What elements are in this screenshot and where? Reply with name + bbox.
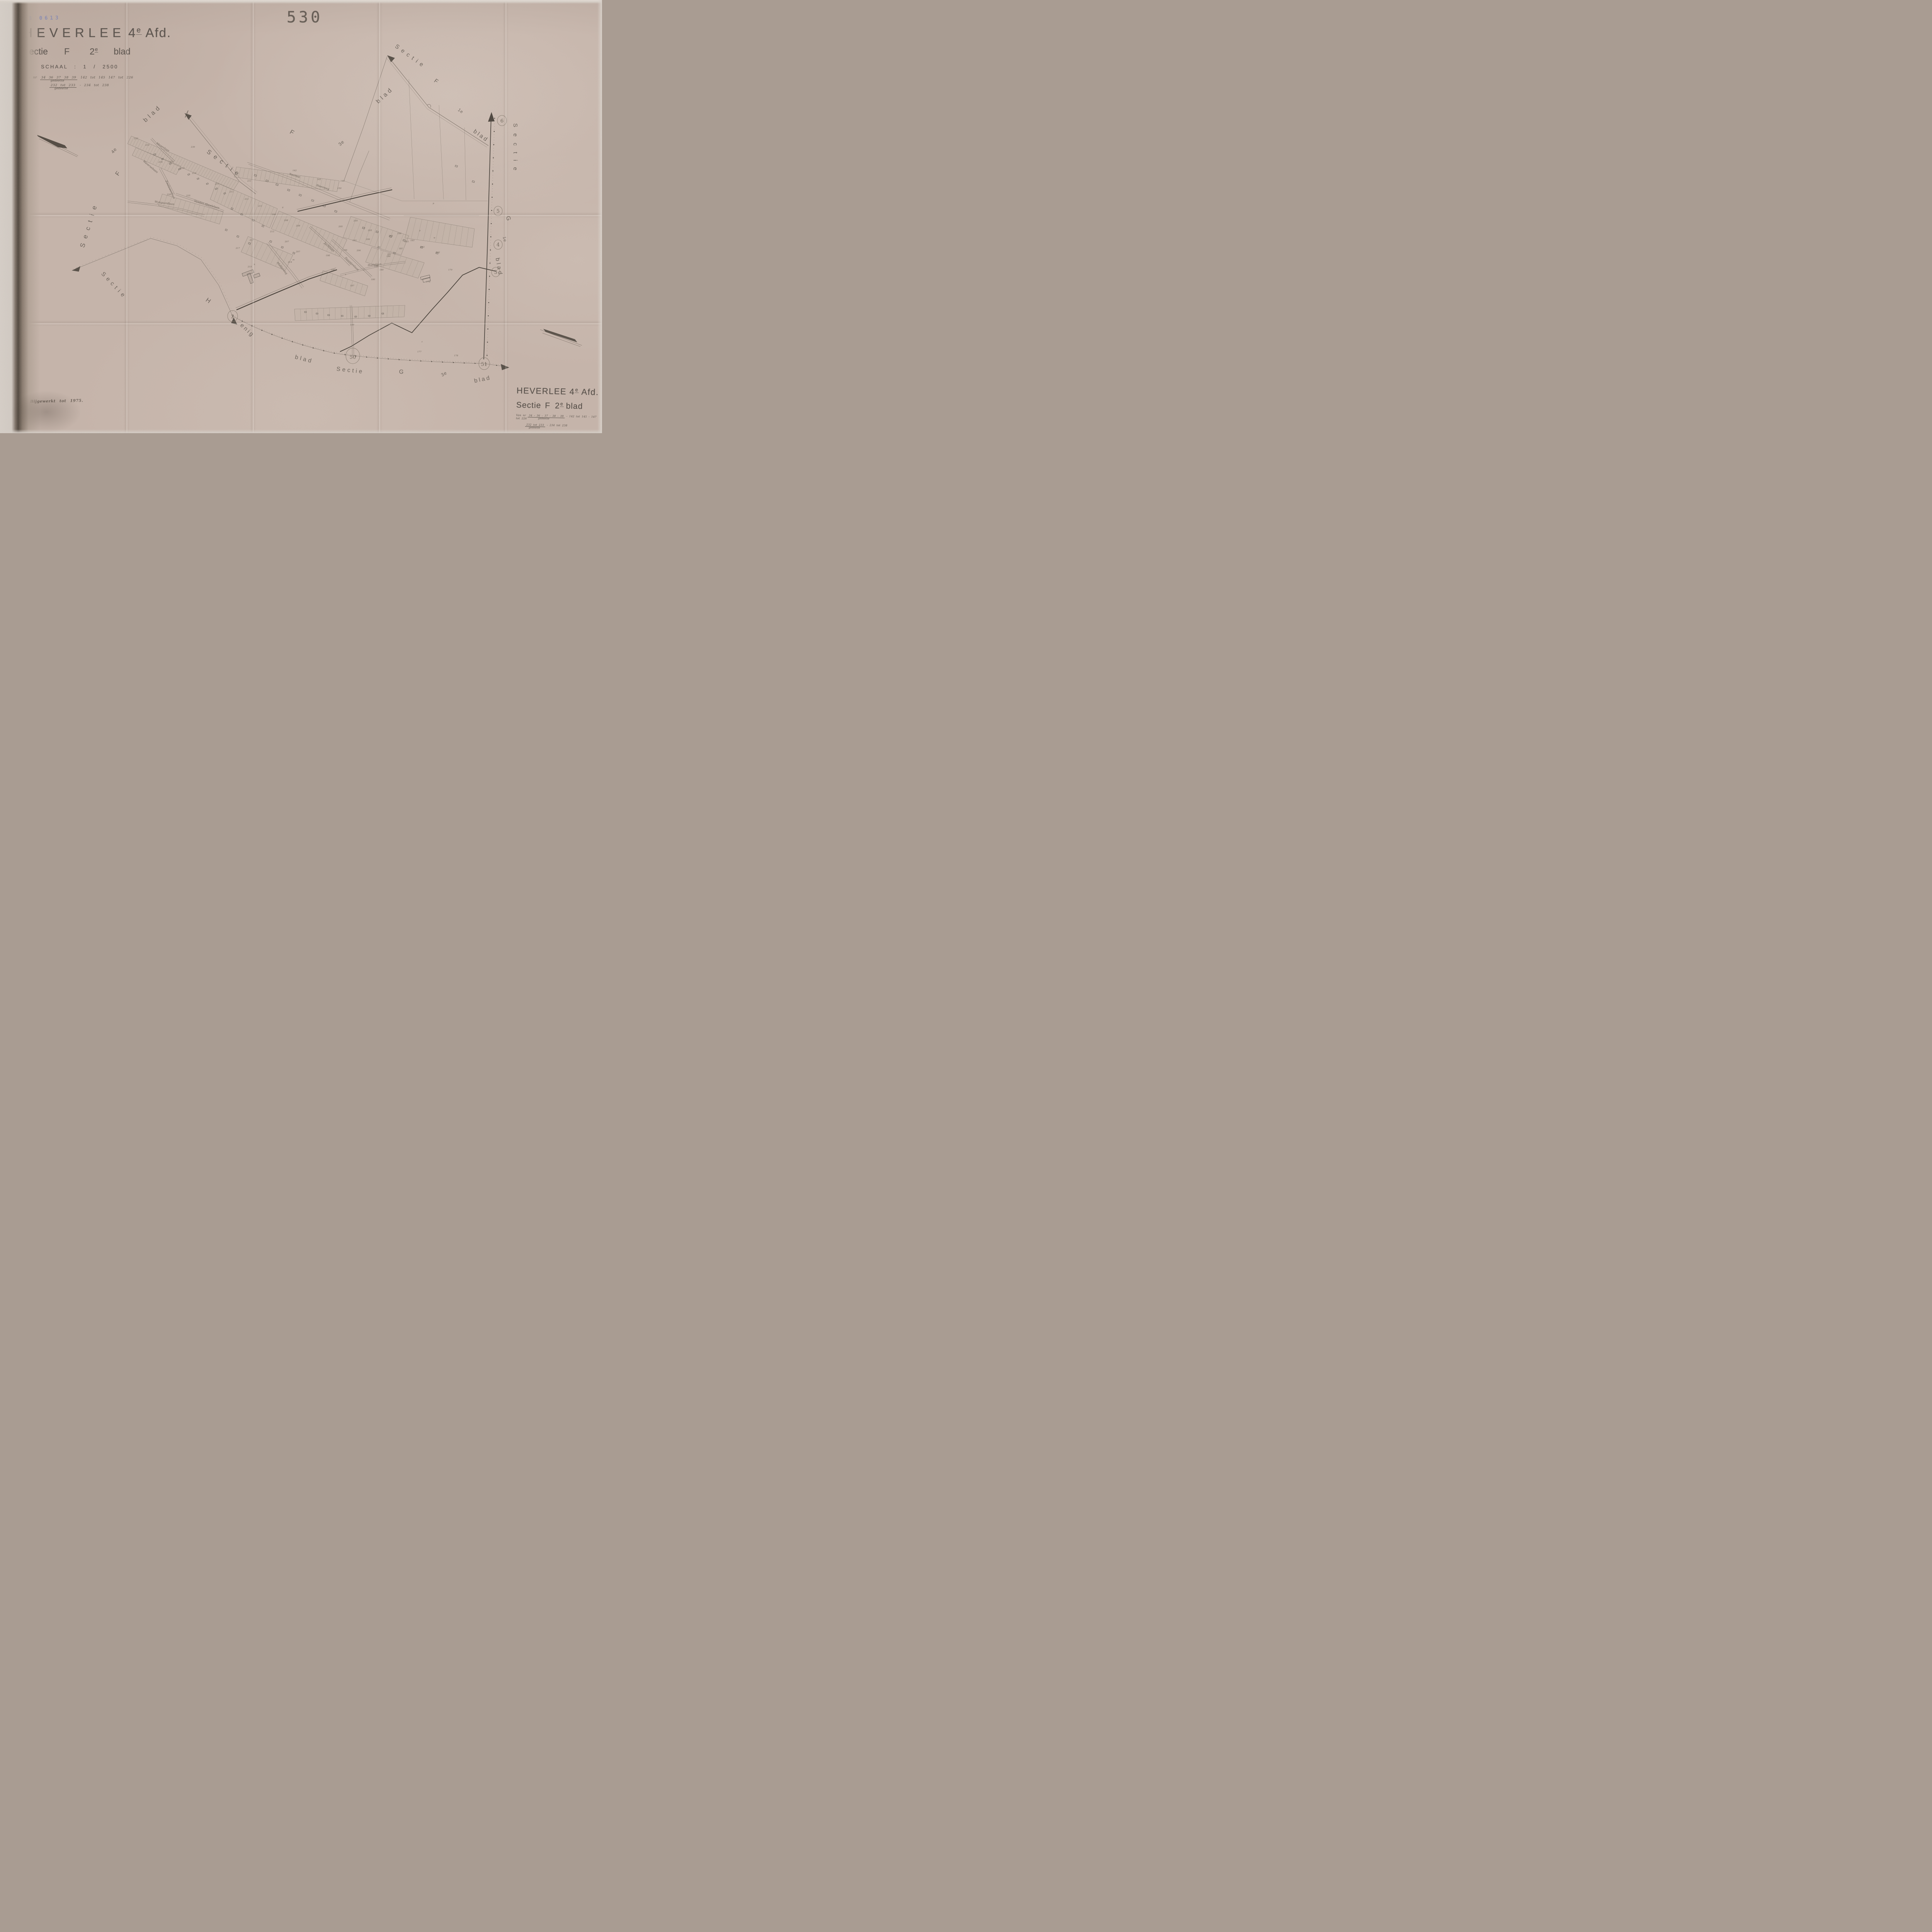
- parcel-letter-label: s: [345, 274, 346, 276]
- parcel-number-label: 214: [287, 261, 292, 264]
- parcel-number-label: 177: [417, 351, 422, 353]
- boundary-west-line: [72, 238, 233, 316]
- boundary-marker-number: 2: [231, 314, 234, 320]
- parcel-number-label: 193: [352, 240, 357, 242]
- parcel-number-label: 232: [134, 138, 138, 140]
- sheet-no: 2: [90, 46, 95, 56]
- boundary-marker-number: 6: [500, 118, 503, 124]
- neighbor-sheet-label: 1e: [502, 236, 508, 242]
- building: [328, 315, 330, 316]
- parcel-number-label: 219: [180, 167, 185, 170]
- parcel-number-label: 205: [338, 226, 343, 228]
- sheet-ordinal: e: [95, 46, 98, 53]
- parcel-number-label: 235: [186, 195, 190, 197]
- building: [276, 184, 278, 186]
- parcel-number-label: 205: [367, 230, 372, 232]
- building: [188, 173, 190, 175]
- parcel-number-label: 205: [353, 220, 358, 222]
- parcel-number-label: 179: [448, 269, 452, 271]
- municipality-name: HEVERLEE: [23, 26, 125, 40]
- arrow-ne-icon: [387, 55, 395, 62]
- parcel-number-label: 143: [317, 179, 321, 181]
- parcel-letter-label: x: [363, 269, 364, 271]
- building: [368, 315, 370, 316]
- parcel-number-label: 203: [404, 241, 409, 243]
- parcel-letter-label: g: [282, 206, 284, 209]
- boundary-marker-number: 3: [494, 270, 497, 276]
- boundary-right-ticks: [487, 118, 495, 360]
- parcel-number-label: 219: [169, 161, 173, 163]
- neighbor-sheet-label: G: [399, 368, 404, 375]
- sectie-word: Sectie: [23, 46, 48, 56]
- neighbor-sheet-label: F: [433, 78, 439, 85]
- parcel-strips: [128, 136, 474, 321]
- parcel-letter-label: w: [434, 237, 435, 239]
- title-section-line: SectieF2eblad: [23, 46, 171, 57]
- parcel-letter-label: m: [293, 259, 294, 261]
- parcel-number-label: 206: [366, 238, 370, 241]
- neighbor-sheet-label: 1e: [457, 108, 464, 115]
- neighbor-sheet-label: Sectie: [78, 200, 100, 248]
- parcel-number-label: 211: [214, 183, 219, 185]
- parcel-number-label: 208: [284, 219, 288, 222]
- building: [269, 240, 272, 243]
- parcel-number-label: 217: [249, 239, 254, 241]
- building: [293, 252, 295, 254]
- title-municipality: HEVERLEE4e Afd.: [23, 26, 171, 40]
- building: [281, 246, 283, 248]
- parcel-number-label: 206: [356, 250, 361, 252]
- building: [311, 199, 314, 202]
- building: [334, 210, 337, 213]
- boundary-bump: [427, 104, 431, 107]
- ink-wedge-east: [543, 329, 577, 342]
- parcel-letter-label: c: [422, 341, 423, 343]
- parcel-number-label: 187: [350, 285, 354, 287]
- parcel-number-label: 207: [284, 241, 289, 243]
- neighbor-sheet-label: blad: [472, 128, 490, 143]
- parcel-number-label: 148: [340, 180, 345, 182]
- parcel-number-label: 179: [426, 281, 430, 283]
- parcel-number-label: 213: [270, 231, 274, 233]
- corner-range-lines: Van nr 34 - 36 - 37 - 38 - 39gedeelte - …: [516, 414, 602, 428]
- arrow-south-end-icon: [501, 364, 509, 370]
- neighbor-sheet-label: G: [505, 216, 512, 221]
- parcel-number-label: 198: [326, 255, 330, 257]
- parcel-number-label: 207: [296, 251, 300, 253]
- gedeelte-note: gedeelte: [54, 87, 68, 90]
- corner-title-block: HEVERLEE 4e Afd. SectieF2eblad Van nr 34…: [516, 386, 602, 428]
- boundary-marker-number: 50: [350, 355, 356, 361]
- parcel-number-label: 211: [247, 180, 252, 182]
- building: [341, 315, 343, 316]
- parcel-number-label: 203: [420, 246, 425, 248]
- corner-section-line: SectieF2eblad: [516, 400, 602, 412]
- building: [206, 183, 209, 185]
- corner-municipality: HEVERLEE 4e Afd.: [517, 386, 602, 398]
- neighbor-sheet-label: Sectie: [336, 366, 364, 375]
- building: [455, 165, 458, 167]
- building: [304, 311, 306, 313]
- parcel-number-label: 208: [296, 225, 300, 227]
- scale-value: 1 / 2500: [83, 64, 118, 70]
- building: [382, 313, 384, 314]
- range-line-1: Van nr 34 36 37 38 39gedeelte 142 tot 14…: [23, 76, 171, 80]
- blad-word: blad: [114, 46, 130, 56]
- building: [287, 189, 290, 191]
- neighbor-sheet-label: Sectie: [100, 270, 128, 300]
- neighbor-sheet-label: H: [204, 297, 212, 305]
- neighbor-sheet-label: 3e: [440, 370, 448, 378]
- parcel-number-label: 184: [397, 233, 401, 235]
- building: [393, 252, 396, 254]
- parcel-number-label: 178: [454, 355, 458, 357]
- division-word: Afd.: [145, 26, 171, 40]
- scanned-cadastral-map-sheet: NaamseSteenwegMiddelwegJachtlaanFazanten…: [0, 0, 602, 433]
- parcel-number-label: 233: [145, 144, 150, 146]
- building: [362, 227, 365, 229]
- neighbor-sheet-label: Sectie: [394, 43, 427, 70]
- building: [376, 231, 379, 233]
- neighbor-sheet-label: 3e: [337, 139, 345, 147]
- neighbor-sheet-label: F: [289, 129, 295, 136]
- parcel-number-label: 211: [244, 198, 249, 201]
- parcel-number-label: 199: [350, 324, 354, 326]
- arrow-right-top-icon: [488, 112, 495, 122]
- parcel-number-label: 217: [235, 247, 240, 250]
- scale-line: SCHAAL : 1 / 2500: [41, 64, 171, 70]
- neighbor-sheet-label: 4e: [110, 146, 118, 155]
- map-labels: NaamseSteenwegMiddelwegJachtlaanFazanten…: [78, 43, 519, 384]
- building: [225, 229, 227, 231]
- parcel-letter-label: p: [433, 202, 434, 205]
- parcel-number-label: 186: [386, 255, 391, 258]
- boundary-south-dots: [233, 316, 503, 366]
- heavy-road-2-edge: [297, 188, 391, 209]
- building: [262, 225, 264, 227]
- building: [299, 194, 301, 196]
- street-name-label: Fazantenlaan: [344, 256, 360, 272]
- parcel-number-label: 208: [271, 214, 276, 216]
- building: [316, 313, 318, 314]
- boundary-right-thick: [484, 117, 491, 359]
- parcel-number-label: 236: [190, 146, 195, 148]
- boundary-n-line: [344, 56, 387, 181]
- building: [378, 247, 380, 248]
- boundary-south-ticks: [233, 315, 502, 365]
- parcel-number-label: 180: [379, 269, 384, 271]
- parcel-number-label: 219: [192, 172, 196, 175]
- parcel-number-label: 183: [410, 240, 415, 242]
- parcel-number-label: 202: [435, 252, 440, 254]
- parcel-number-label: 180: [371, 279, 375, 281]
- parcel-number-label: 181: [399, 248, 403, 250]
- parcel-number-label: 203: [388, 235, 393, 237]
- boundary-marker-number: 4: [497, 242, 500, 248]
- parcel-number-label: 196: [331, 269, 335, 271]
- gedeelte-note: gedeelte: [51, 79, 65, 82]
- range-prefix: Van nr: [23, 76, 37, 80]
- parcel-number-label: 215: [247, 266, 252, 268]
- parcel-letter-label: k: [254, 264, 255, 266]
- ink-wedge-west: [37, 135, 67, 148]
- parcel-number-label: 211: [258, 205, 262, 207]
- parcel-number-label: 188: [374, 265, 378, 268]
- archive-code-stamp: B 0613: [29, 15, 61, 21]
- section-letter: F: [64, 46, 70, 56]
- boundary-west-ticks: [73, 237, 234, 315]
- boundary-marker-number: 5: [497, 209, 500, 214]
- parcel-number-label: 142: [293, 170, 297, 172]
- parcel-number-label: 234: [158, 161, 163, 163]
- neighbor-sheet-label: Sectie: [512, 123, 519, 177]
- parcel-number-label: 150: [337, 187, 342, 190]
- boundary-south-line: [233, 316, 503, 366]
- building: [355, 316, 357, 317]
- parcel-number-label: 194: [343, 249, 347, 252]
- sheet-number-stamp: 530: [287, 9, 323, 26]
- boundary-marker-number: 51: [481, 362, 488, 367]
- boundary-ne-line-2: [386, 58, 487, 147]
- building: [236, 235, 239, 238]
- range-line-2: 232 tot 233gedeelte - 234 tot 238: [49, 83, 171, 87]
- division-number: 4: [128, 26, 136, 40]
- neighbor-sheet-label: blad: [294, 354, 314, 365]
- neighbor-sheet-label: F: [114, 170, 122, 177]
- neighbor-sheet-label: blad: [474, 374, 492, 384]
- building: [197, 178, 199, 180]
- parcel-number-label: 226: [167, 194, 171, 196]
- neighbor-sheet-label: blad: [375, 86, 395, 105]
- title-block: HEVERLEE4e Afd. SectieF2eblad SCHAAL : 1…: [23, 26, 171, 87]
- large-building-215: [242, 268, 261, 285]
- scale-label: SCHAAL: [41, 64, 68, 70]
- division-ordinal: e: [136, 26, 142, 35]
- neighbor-sheet-label: enig: [239, 322, 256, 338]
- building: [472, 180, 475, 182]
- parcel-range-lines: Van nr 34 36 37 38 39gedeelte 142 tot 14…: [23, 76, 171, 87]
- parcel-number-label: 211: [229, 191, 234, 193]
- neighbor-sheet-label: blad: [142, 104, 163, 124]
